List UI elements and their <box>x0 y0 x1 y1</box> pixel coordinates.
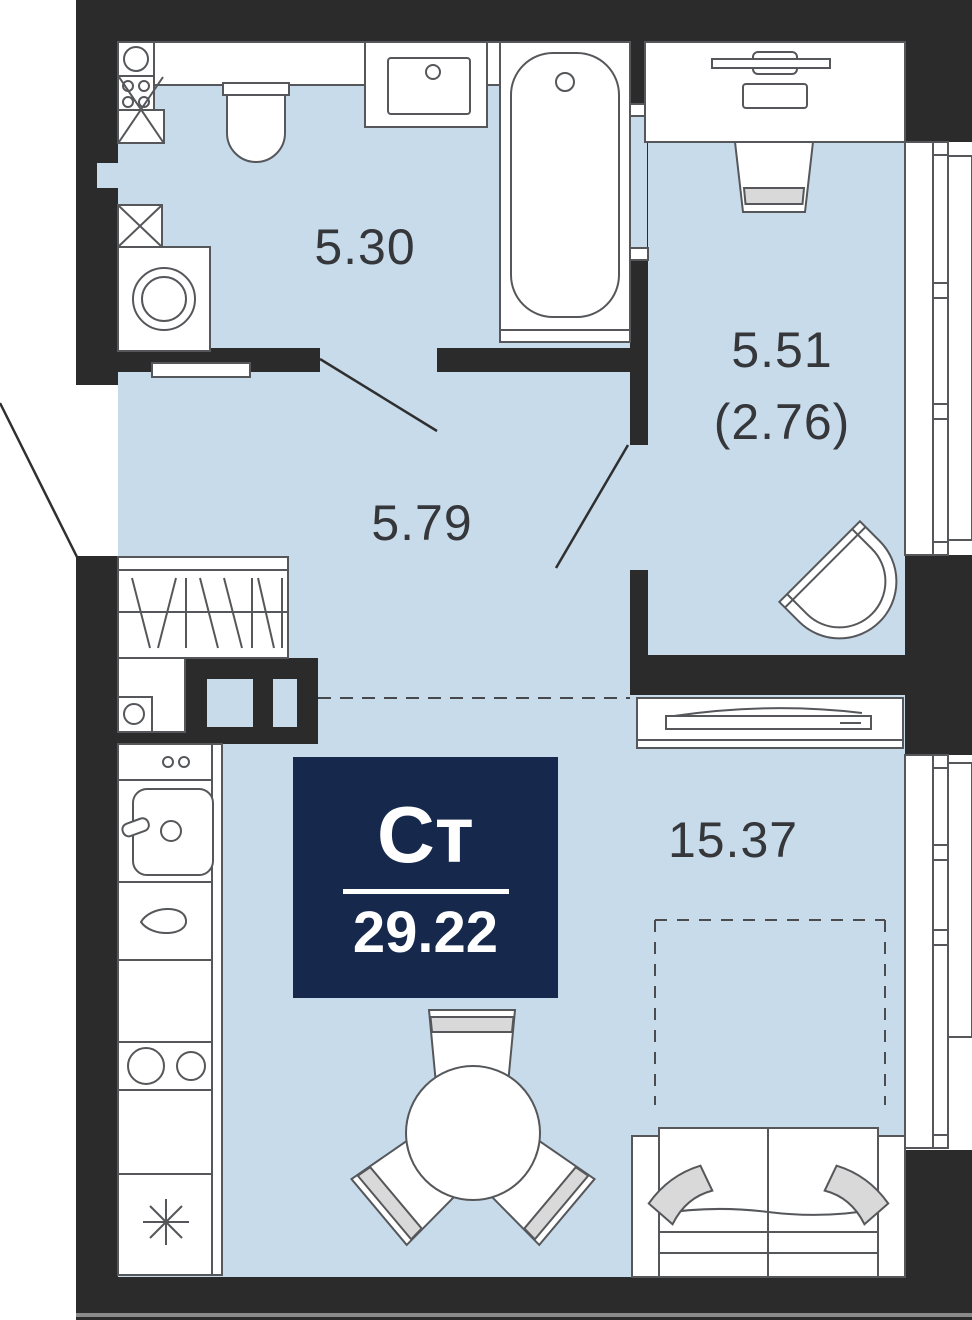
vanity-sink <box>365 42 487 127</box>
bathtub <box>500 42 630 342</box>
bathroom-door-swing <box>320 359 437 431</box>
desk <box>645 42 905 142</box>
unit-total-area: 29.22 <box>353 904 498 962</box>
window-living <box>905 755 972 1148</box>
floor-plan-drawing <box>0 0 972 1320</box>
washing-machine <box>118 247 210 351</box>
desk-chair <box>735 142 813 212</box>
loggia-door-swing <box>556 445 628 568</box>
dresser <box>637 698 903 748</box>
window-loggia <box>905 142 972 555</box>
room-area-label-hallway: 5.79 <box>371 494 472 552</box>
sofa <box>632 1128 905 1277</box>
entrance-door-swing <box>0 403 77 557</box>
wardrobe <box>118 557 288 658</box>
dining-table <box>406 1066 540 1200</box>
room-area-label-living: 15.37 <box>668 811 798 869</box>
floor-plan: 5.30 5.51 (2.76) 5.79 15.37 Ст 29.22 <box>0 0 972 1320</box>
water-heater-hall <box>118 658 185 732</box>
door-swings <box>0 359 628 568</box>
unit-type-label: Ст <box>377 795 474 875</box>
toilet <box>223 83 289 162</box>
water-heater-icon <box>118 42 154 76</box>
room-area-label-loggia-reduced: (2.76) <box>714 393 851 451</box>
room-area-label-bathroom: 5.30 <box>314 218 415 276</box>
unit-badge: Ст 29.22 <box>293 757 558 998</box>
riser-shaft-icon <box>118 76 164 143</box>
bed-outline <box>655 920 885 1105</box>
room-area-label-loggia: 5.51 <box>731 321 832 379</box>
riser-square-icon <box>118 205 162 247</box>
door-threshold <box>152 363 250 377</box>
kitchen-sink <box>121 789 213 875</box>
armchair <box>779 521 920 662</box>
section-cut-line <box>76 1313 972 1317</box>
badge-divider <box>343 889 509 894</box>
